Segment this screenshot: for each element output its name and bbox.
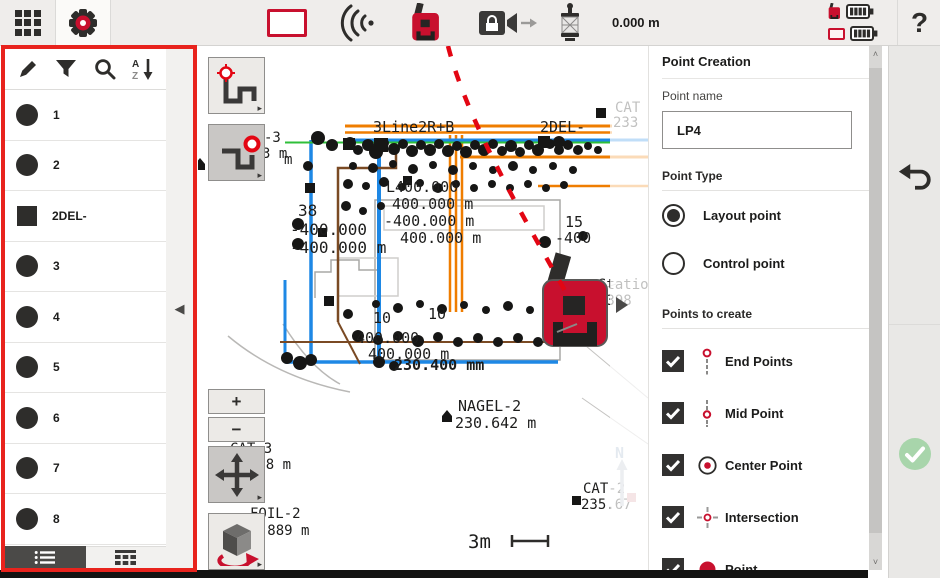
pencil-icon	[17, 58, 39, 80]
checkbox-group: End Points Mid Point Center Point	[649, 341, 888, 578]
list-item[interactable]: 1	[5, 90, 166, 141]
map-label: 3m	[468, 531, 491, 553]
circle-marker-icon	[16, 407, 38, 429]
prism-button[interactable]	[552, 0, 588, 45]
list-item[interactable]: 3	[5, 242, 166, 293]
polyline-start-icon	[213, 62, 261, 110]
point-list: 122DEL-345678	[5, 90, 166, 546]
end-points-icon	[695, 348, 719, 375]
filter-icon	[55, 59, 77, 79]
circle-marker-icon	[16, 356, 38, 378]
polyline-end-icon	[213, 129, 261, 177]
map-label: L400.000	[386, 178, 458, 196]
map-label: -400.000 m	[384, 212, 474, 230]
radio-unselected-icon[interactable]	[662, 252, 685, 275]
draw-polyline-end-button[interactable]: ▸	[208, 124, 265, 181]
circle-marker-icon	[16, 508, 38, 530]
list-item[interactable]: 2	[5, 141, 166, 192]
undo-icon	[896, 155, 934, 193]
square-marker-icon	[17, 206, 37, 226]
checkbox-row-mid-point[interactable]: Mid Point	[662, 393, 888, 433]
cube-3d-icon	[213, 518, 261, 566]
search-button[interactable]	[90, 54, 120, 84]
draw-polyline-start-button[interactable]: ▸	[208, 57, 265, 114]
tab-table-view[interactable]	[86, 546, 167, 568]
scale-bar	[512, 535, 548, 547]
mid-point-icon	[695, 400, 719, 427]
submenu-indicator-icon: ▸	[257, 559, 262, 570]
list-item-label: 7	[53, 461, 60, 475]
radio-label: Layout point	[703, 208, 781, 223]
controller-battery-row	[828, 24, 892, 43]
radio-row[interactable]: Layout point	[649, 191, 888, 239]
layout-view-button[interactable]	[265, 0, 309, 45]
checkbox-checked[interactable]	[662, 350, 684, 372]
map-view[interactable]: 3Line2R+B2DEL-CAT233m38-400.000-400.000 …	[198, 46, 648, 578]
map-label: NAGEL-2	[458, 397, 521, 415]
battery-status-group[interactable]	[828, 2, 892, 43]
top-toolbar: 0.000 m	[0, 0, 940, 46]
list-item-label: 2DEL-	[52, 209, 87, 223]
help-button[interactable]: ?	[897, 0, 940, 45]
undo-button[interactable]	[895, 154, 935, 194]
check-icon	[665, 407, 681, 420]
svg-text:Z: Z	[132, 71, 138, 81]
zoom-out-button[interactable]: −	[208, 417, 265, 442]
list-item-label: 4	[53, 310, 60, 324]
check-icon	[665, 355, 681, 368]
edit-button[interactable]	[13, 54, 43, 84]
circle-marker-icon	[16, 457, 38, 479]
panel-collapse-handle[interactable]: ◀	[166, 49, 193, 568]
sort-button[interactable]: A Z	[128, 54, 158, 84]
list-view-tabs	[5, 546, 166, 568]
checkbox-label: Mid Point	[725, 406, 784, 421]
circle-marker-icon	[16, 255, 38, 277]
map-label: 3Line2R+B	[373, 118, 454, 136]
total-station-icon	[409, 3, 443, 43]
battery-icon	[850, 26, 878, 41]
list-item[interactable]: 2DEL-	[5, 191, 166, 242]
map-label: -400.000	[290, 220, 367, 239]
settings-button[interactable]	[56, 0, 111, 45]
minus-icon: −	[232, 420, 242, 440]
map-label: 10	[428, 305, 446, 323]
prism-pole-icon	[555, 3, 585, 43]
checkbox-checked[interactable]	[662, 454, 684, 476]
circle-marker-icon	[16, 154, 38, 176]
list-item[interactable]: 6	[5, 393, 166, 444]
checkbox-row-intersection[interactable]: Intersection	[662, 497, 888, 537]
tab-list-view[interactable]	[5, 546, 86, 568]
map-label: -400.000 m	[290, 238, 386, 257]
search-icon	[94, 58, 116, 80]
lock-audio-button[interactable]	[478, 0, 540, 45]
view-3d-button[interactable]: ▸	[208, 513, 265, 570]
checkbox-label: End Points	[725, 354, 793, 369]
list-item[interactable]: 7	[5, 444, 166, 495]
map-label: 38	[298, 201, 317, 220]
bottom-bar	[0, 570, 868, 578]
grid-icon	[15, 10, 41, 36]
map-canvas: 3Line2R+B2DEL-CAT233m38-400.000-400.000 …	[198, 46, 648, 578]
check-icon	[665, 511, 681, 524]
controller-mini-icon	[828, 28, 845, 40]
plus-icon: +	[232, 392, 242, 412]
laser-line	[448, 46, 570, 300]
map-overlay-strip	[610, 46, 648, 578]
map-label: 2DEL-	[540, 118, 585, 136]
map-label: 230.400 mm	[394, 356, 484, 374]
point-creation-panel: Point Creation Point name Point Type Lay…	[648, 46, 888, 570]
point-type-label: Point Type	[662, 169, 875, 191]
checkbox-label: Center Point	[725, 458, 802, 473]
points-to-create-label: Points to create	[662, 307, 875, 329]
lock-speaker-icon	[479, 7, 539, 39]
map-label: 400.000 m	[392, 195, 473, 213]
battery-icon	[846, 4, 874, 19]
list-item[interactable]: 5	[5, 343, 166, 394]
scroll-up-icon[interactable]: ˄	[869, 49, 882, 59]
filter-button[interactable]	[51, 54, 81, 84]
radio-row[interactable]: Control point	[649, 239, 888, 287]
list-toolbar: A Z	[5, 49, 166, 90]
pan-button[interactable]: ▸	[208, 446, 265, 503]
point-name-label: Point name	[662, 89, 875, 103]
map-label: -3	[264, 130, 281, 146]
points-list-panel: A Z 122DEL-345678	[5, 49, 167, 568]
confirm-button[interactable]	[897, 436, 933, 472]
check-icon	[665, 459, 681, 472]
measurement-value: 0.000 m	[612, 0, 660, 45]
center-point-icon	[695, 455, 719, 476]
collapse-left-icon: ◀	[175, 301, 185, 317]
panel-scrollbar[interactable]: ˄ ˅	[869, 46, 882, 570]
check-circle-icon	[897, 436, 933, 472]
instrument-battery-row	[828, 2, 892, 21]
map-label: 400.000 m	[400, 229, 481, 247]
submenu-indicator-icon: ▸	[257, 492, 262, 503]
submenu-indicator-icon: ▸	[257, 103, 262, 114]
scroll-down-icon[interactable]: ˅	[869, 557, 882, 567]
radio-group: Layout pointControl point	[649, 191, 888, 287]
divider	[889, 324, 940, 325]
list-item-label: 8	[53, 512, 60, 526]
list-item-label: 3	[53, 259, 60, 273]
sort-az-icon: A Z	[131, 57, 155, 81]
app-window: 0.000 m	[0, 0, 940, 578]
list-item-label: 6	[53, 411, 60, 425]
list-item-label: 1	[53, 108, 60, 122]
gear-icon	[64, 4, 102, 42]
map-label: 10	[373, 309, 391, 327]
zoom-in-button[interactable]: +	[208, 389, 265, 414]
checkbox-row-end-points[interactable]: End Points	[662, 341, 888, 381]
signal-button[interactable]	[338, 0, 382, 45]
checkbox-row-center-point[interactable]: Center Point	[662, 445, 888, 485]
map-label: 230.642 m	[455, 414, 536, 432]
point-name-input[interactable]	[662, 111, 852, 149]
instrument-mini-icon	[828, 3, 841, 20]
list-view-icon	[34, 550, 56, 565]
pan-arrows-icon	[214, 452, 260, 498]
list-item-label: 5	[53, 360, 60, 374]
radio-label: Control point	[703, 256, 785, 271]
map-label: -400	[555, 229, 591, 247]
rectangle-icon	[267, 9, 307, 37]
submenu-indicator-icon: ▸	[257, 170, 262, 181]
list-item[interactable]: 8	[5, 494, 166, 545]
checkbox-checked[interactable]	[662, 402, 684, 424]
table-view-icon	[115, 550, 136, 565]
scrollbar-thumb[interactable]	[869, 68, 882, 533]
intersection-icon	[695, 507, 719, 528]
svg-text:A: A	[132, 59, 139, 70]
radio-waves-icon	[340, 4, 380, 42]
action-column	[888, 46, 940, 578]
list-item-label: 2	[53, 158, 60, 172]
app-menu-button[interactable]	[0, 0, 56, 45]
circle-marker-icon	[16, 306, 38, 328]
panel-title: Point Creation	[662, 54, 875, 79]
checkbox-label: Intersection	[725, 510, 799, 525]
instrument-button[interactable]	[404, 0, 448, 45]
checkbox-checked[interactable]	[662, 506, 684, 528]
radio-selected-icon[interactable]	[662, 204, 685, 227]
circle-marker-icon	[16, 104, 38, 126]
list-item[interactable]: 4	[5, 292, 166, 343]
map-label: 3 m	[262, 146, 287, 162]
